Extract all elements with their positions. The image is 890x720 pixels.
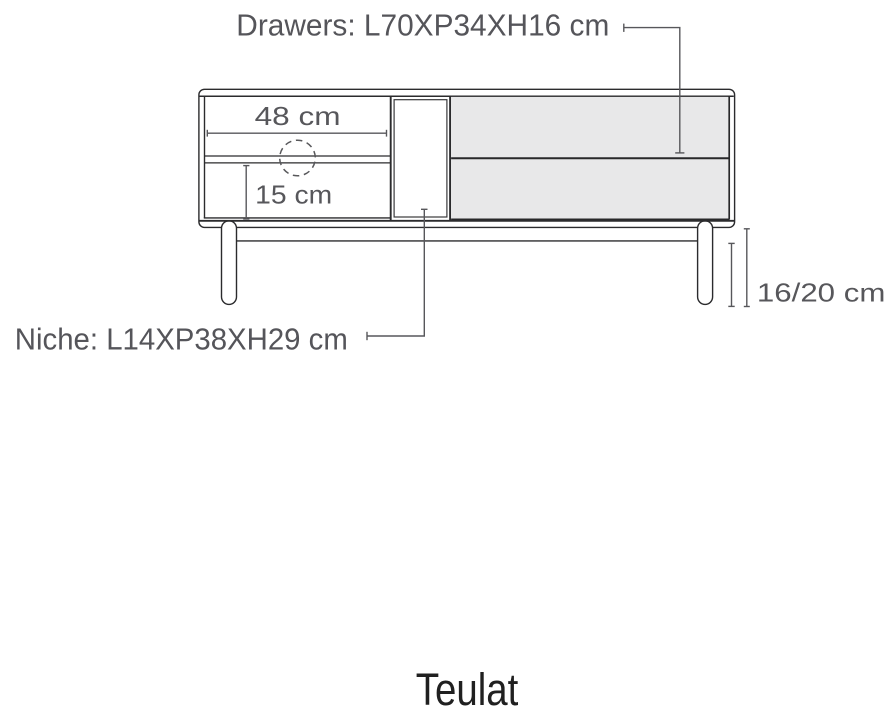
svg-text:Niche: L14XP38XH29 cm: Niche: L14XP38XH29 cm <box>15 322 348 357</box>
svg-text:16/20 cm: 16/20 cm <box>757 277 886 307</box>
svg-text:48 cm: 48 cm <box>255 101 341 131</box>
svg-text:15 cm: 15 cm <box>255 179 332 209</box>
svg-text:Drawers: L70XP34XH16 cm: Drawers: L70XP34XH16 cm <box>236 8 609 43</box>
svg-text:Teulat: Teulat <box>416 664 519 715</box>
